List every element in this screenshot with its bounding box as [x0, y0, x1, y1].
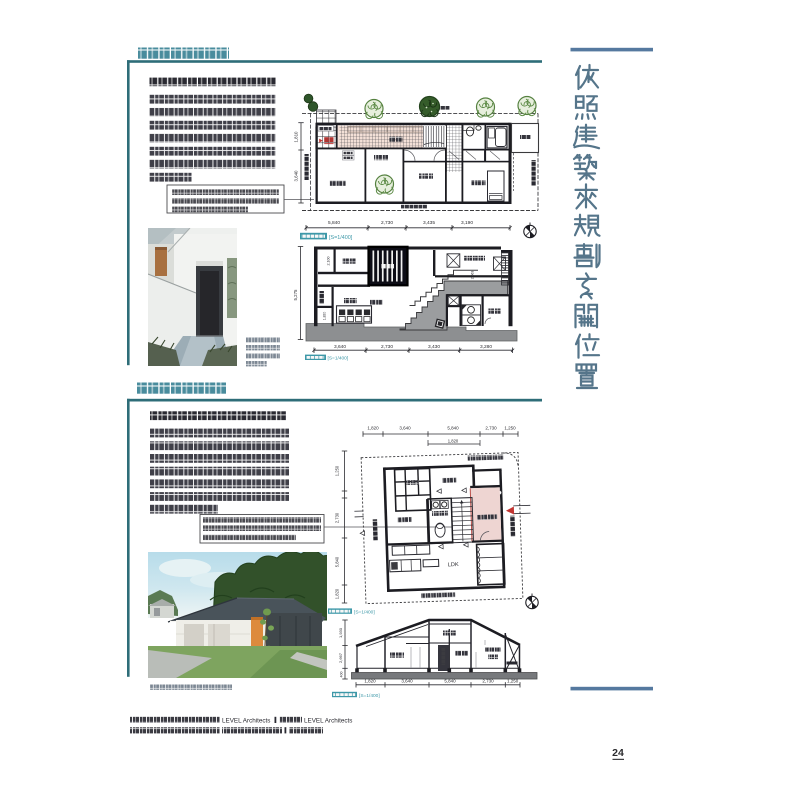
svg-text:2,663: 2,663 — [471, 271, 475, 280]
svg-text:LEVEL Architects: LEVEL Architects — [304, 718, 352, 725]
svg-text:2,730: 2,730 — [381, 344, 393, 350]
svg-text:3,435: 3,435 — [423, 220, 435, 226]
svg-text:1,820: 1,820 — [335, 588, 340, 599]
svg-text:LEVEL Architects: LEVEL Architects — [222, 718, 270, 725]
svg-text:2,730: 2,730 — [482, 678, 494, 683]
svg-text:2,730: 2,730 — [335, 512, 340, 523]
svg-text:2,100: 2,100 — [327, 257, 331, 266]
svg-text:5,275: 5,275 — [293, 289, 298, 301]
svg-text:3,280: 3,280 — [480, 344, 492, 350]
svg-text:2,667: 2,667 — [338, 652, 343, 663]
svg-text:3,190: 3,190 — [461, 220, 473, 226]
svg-text:5,840: 5,840 — [447, 426, 459, 431]
svg-text:1,820: 1,820 — [364, 678, 376, 683]
svg-text:1,810: 1,810 — [294, 131, 299, 143]
svg-text:5,840: 5,840 — [328, 220, 340, 226]
svg-text:1,250: 1,250 — [507, 678, 519, 683]
svg-text:1,250: 1,250 — [335, 465, 340, 476]
svg-text:3,640: 3,640 — [401, 678, 413, 683]
svg-text:[S=1/400]: [S=1/400] — [328, 356, 349, 362]
svg-text:1,820: 1,820 — [367, 426, 379, 431]
svg-text:[S=1/400]: [S=1/400] — [329, 235, 353, 241]
svg-text:[S=1/400]: [S=1/400] — [354, 609, 375, 615]
svg-text:3,640: 3,640 — [399, 426, 411, 431]
svg-text:[S=1/400]: [S=1/400] — [359, 693, 380, 699]
svg-text:24: 24 — [612, 747, 624, 759]
svg-text:1,250: 1,250 — [504, 426, 516, 431]
svg-text:3,640: 3,640 — [334, 344, 346, 350]
svg-text:5,840: 5,840 — [335, 556, 340, 567]
svg-text:LDK: LDK — [448, 562, 459, 568]
svg-text:3,430: 3,430 — [428, 344, 440, 350]
svg-text:1,820: 1,820 — [448, 439, 459, 444]
svg-text:2,730: 2,730 — [381, 220, 393, 226]
svg-text:400: 400 — [340, 672, 344, 678]
svg-text:3,640: 3,640 — [294, 170, 299, 182]
svg-text:1,930: 1,930 — [338, 627, 343, 638]
svg-text:5,840: 5,840 — [444, 678, 456, 683]
svg-text:1,820: 1,820 — [323, 312, 327, 321]
svg-text:2,730: 2,730 — [485, 426, 497, 431]
